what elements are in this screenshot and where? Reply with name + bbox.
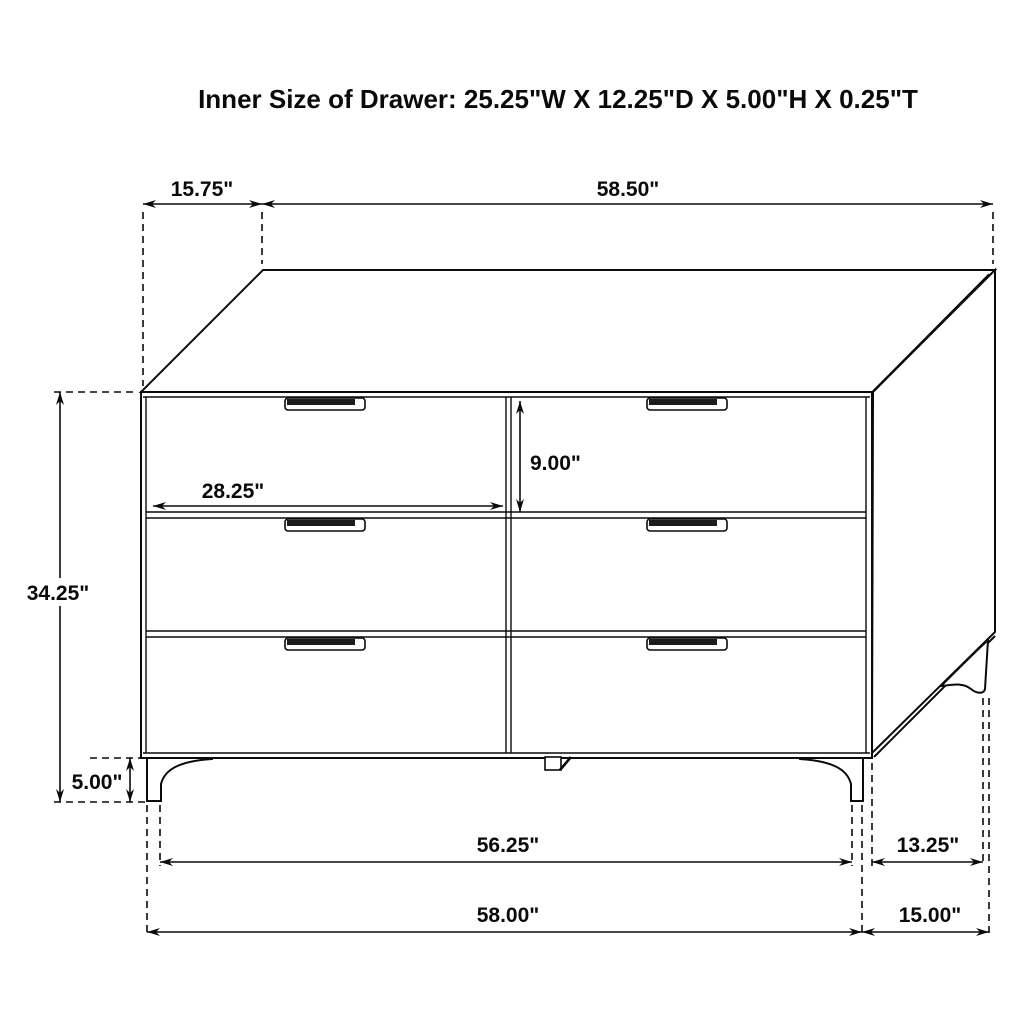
drawer-width-label: 28.25" [202, 480, 265, 503]
drawer-handle [285, 638, 365, 650]
front-right-leg [800, 758, 863, 801]
center-foot [545, 757, 561, 770]
side-feet-span-label: 13.25" [897, 834, 960, 857]
overall-height-label: 34.25" [27, 582, 90, 605]
drawer-handle [647, 638, 727, 650]
drawer-handle [285, 519, 365, 531]
drawer-handle [285, 398, 365, 410]
overall-depth-label: 15.00" [899, 904, 962, 927]
feet-span-label: 56.25" [477, 834, 540, 857]
front-left-leg [147, 758, 212, 801]
dresser-top-face [141, 270, 995, 392]
dresser-dimension-diagram: Inner Size of Drawer: 25.25"W X 12.25"D … [0, 0, 1024, 1024]
dimension-diagram-page: Inner Size of Drawer: 25.25"W X 12.25"D … [0, 0, 1024, 1024]
drawer-handle [647, 519, 727, 531]
dresser-drawing [141, 270, 995, 801]
top-depth-label: 15.75" [171, 178, 234, 201]
diagram-title: Inner Size of Drawer: 25.25"W X 12.25"D … [198, 84, 918, 114]
drawer-handle [647, 398, 727, 410]
top-width-label: 58.50" [597, 178, 660, 201]
overall-width-label: 58.00" [477, 904, 540, 927]
leg-height-label: 5.00" [72, 771, 123, 794]
drawer-height-label: 9.00" [530, 452, 581, 475]
